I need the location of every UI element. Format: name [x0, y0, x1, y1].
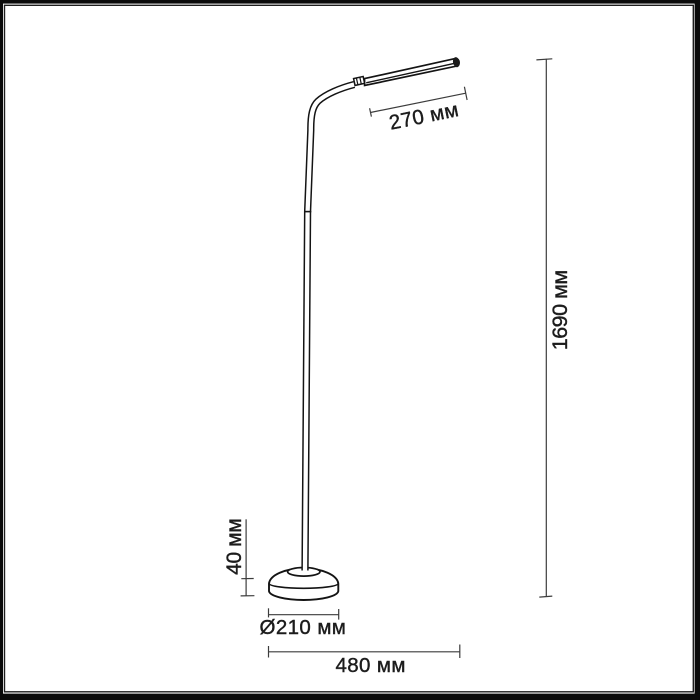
svg-text:40 мм: 40 мм [223, 519, 246, 575]
svg-text:Ø210 мм: Ø210 мм [259, 616, 346, 639]
svg-text:480 мм: 480 мм [335, 654, 406, 677]
svg-text:1690 мм: 1690 мм [548, 270, 572, 350]
